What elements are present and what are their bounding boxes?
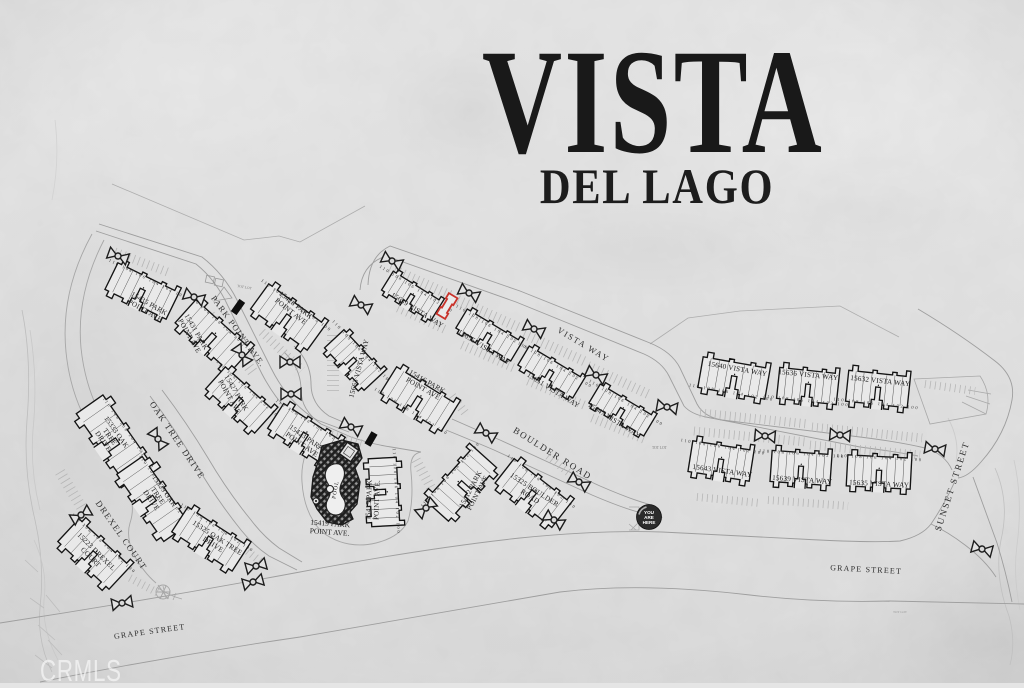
svg-text:POINT AVE.: POINT AVE. [372,480,381,520]
svg-text:TOT LOT: TOT LOT [893,610,908,614]
svg-text:CRMLS: CRMLS [40,653,122,683]
svg-text:TOT LOT: TOT LOT [652,446,668,450]
svg-text:HERE: HERE [643,520,656,525]
svg-text:DEL LAGO: DEL LAGO [540,160,774,215]
